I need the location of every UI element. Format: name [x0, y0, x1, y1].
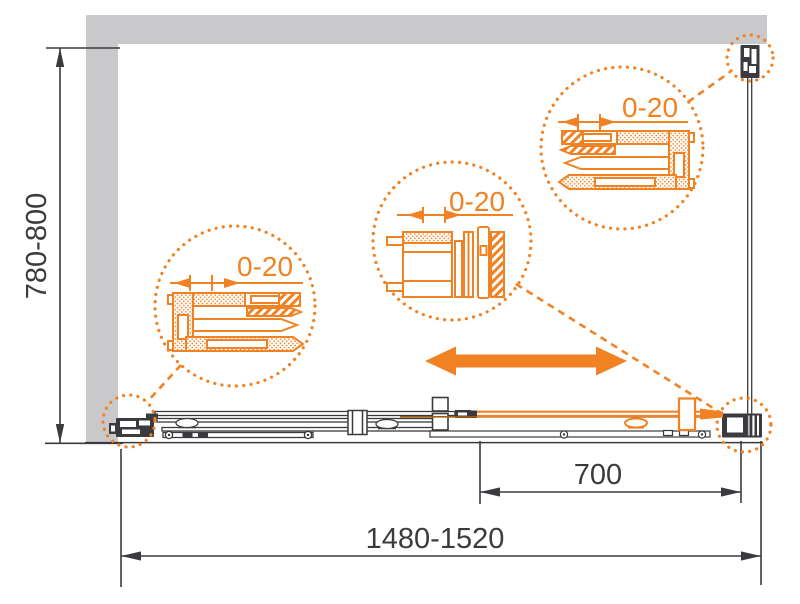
- detail-top-bracket-profile: 0-20: [558, 92, 694, 189]
- sliding-panel-handle: [625, 419, 647, 428]
- left-adjustment-label: 0-20: [237, 251, 293, 282]
- arrowhead-left: [121, 551, 141, 560]
- leader-middle: [516, 284, 721, 413]
- leader-left: [147, 365, 181, 402]
- total-width-dimension-label: 1480-1520: [366, 523, 505, 555]
- door-width-dimension-label: 700: [574, 459, 622, 491]
- arrowhead-left: [480, 487, 500, 496]
- stabilizer-post: [748, 78, 752, 437]
- total-width-dimension: 1480-1520: [121, 441, 761, 587]
- arrowhead-right: [741, 551, 761, 560]
- fixed-panel-handle: [176, 419, 198, 428]
- right-roller-carriage: [430, 431, 710, 439]
- slide-direction-arrow-icon: [425, 347, 627, 376]
- middle-adjustment-label: 0-20: [449, 186, 505, 217]
- arrowhead-down: [56, 424, 64, 443]
- wall-left-strip: [86, 15, 118, 443]
- middle-profile-drawing: [387, 227, 504, 298]
- ceiling-bracket: [741, 45, 760, 78]
- panel-meeting-profile: [433, 398, 449, 431]
- diagram-canvas: 780-800 1480-1520 700: [0, 0, 800, 604]
- arrowhead-right: [721, 487, 741, 496]
- top-right-adjustment-label: 0-20: [622, 92, 678, 123]
- door-width-dimension: 700: [480, 441, 741, 504]
- arrowhead-up: [56, 48, 64, 67]
- height-dimension-label: 780-800: [21, 193, 53, 299]
- top-right-profile-drawing: [559, 131, 694, 189]
- detail-left-wall-profile: 0-20: [168, 251, 303, 351]
- left-roller-carriage: [163, 431, 313, 438]
- center-connector-profile: [348, 411, 367, 435]
- left-profile-drawing: [168, 293, 303, 351]
- top-rail: [155, 412, 455, 416]
- detail-right-wall-profile: 0-20: [387, 186, 513, 298]
- second-panel-handle: [376, 420, 398, 429]
- panel-stopper: [679, 399, 695, 431]
- installation-diagram: 780-800 1480-1520 700: [0, 0, 800, 604]
- right-wall-bracket: [722, 414, 762, 438]
- wall-top-strip: [86, 15, 767, 44]
- leader-top-right: [688, 72, 730, 102]
